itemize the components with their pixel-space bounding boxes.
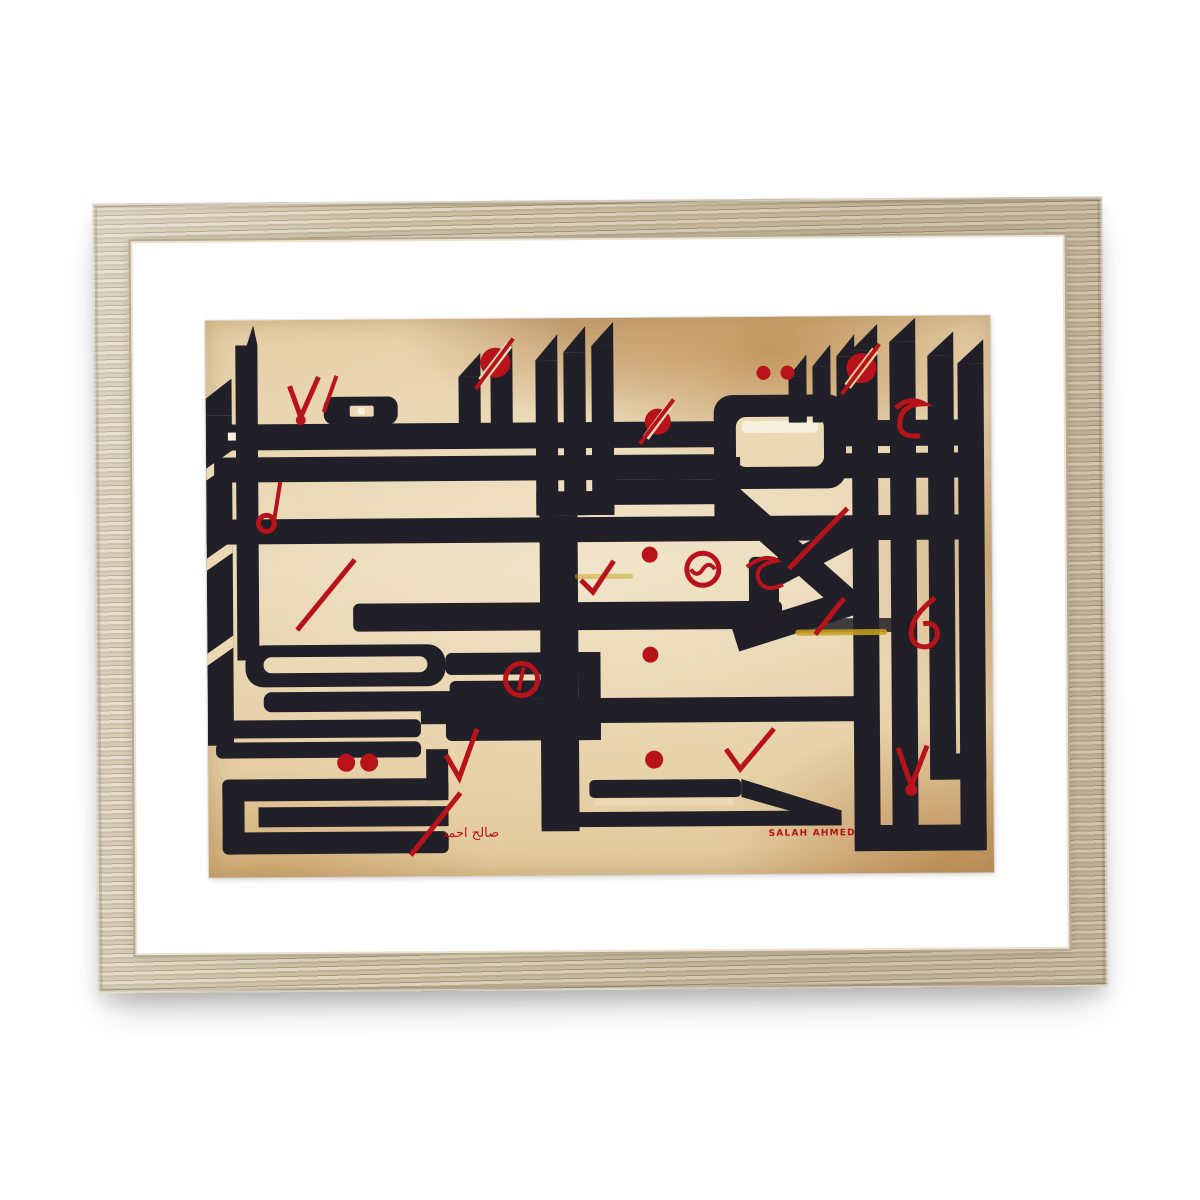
artwork-canvas: صالح احمد SALAH AHMED: [205, 315, 994, 877]
circle-wave-mark: [687, 553, 719, 585]
product-photo: صالح احمد SALAH AHMED: [0, 0, 1200, 1200]
picture-frame: صالح احمد SALAH AHMED: [92, 196, 1107, 993]
arabic-signature: صالح احمد: [442, 826, 500, 841]
latin-signature: SALAH AHMED: [769, 828, 856, 839]
mat-board: صالح احمد SALAH AHMED: [133, 237, 1068, 953]
kufic-calligraphy-graphic: صالح احمد SALAH AHMED: [205, 315, 994, 877]
